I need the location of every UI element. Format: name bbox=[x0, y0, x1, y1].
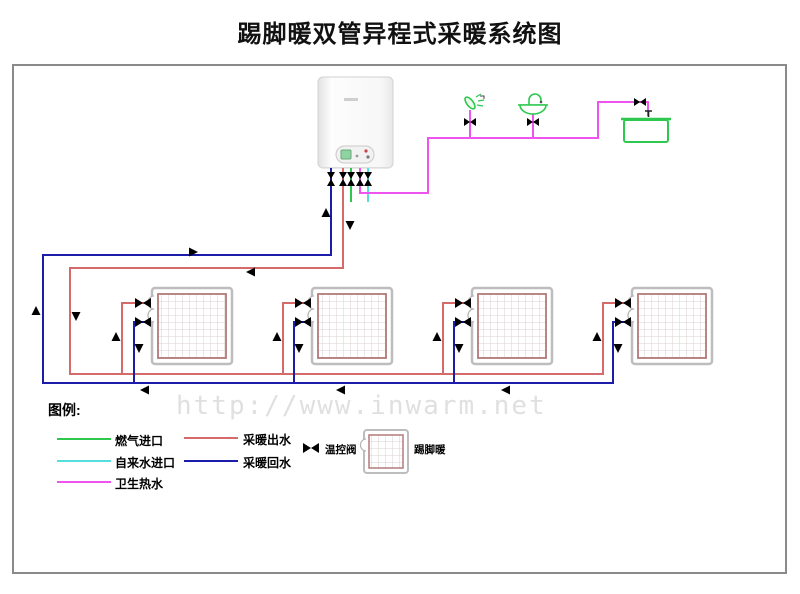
legend-label-tapwater: 自来水进口 bbox=[115, 454, 175, 471]
legend-label-radiator: 踢脚暖 bbox=[414, 442, 446, 457]
legend-label-valve: 温控阀 bbox=[325, 442, 357, 457]
legend-label-hotwater: 卫生热水 bbox=[115, 475, 163, 492]
legend-line-return bbox=[184, 460, 238, 462]
bathtub-icon bbox=[621, 111, 671, 142]
baseboard-heater-1 bbox=[148, 288, 232, 364]
sanitary-hot-water-pipes bbox=[360, 102, 648, 193]
shower-head-icon bbox=[463, 94, 484, 110]
stop-valve-icons bbox=[464, 95, 646, 126]
boiler-logo bbox=[344, 98, 358, 101]
system-diagram bbox=[0, 0, 800, 594]
legend-label-gas: 燃气进口 bbox=[115, 432, 163, 449]
legend-line-hotwater bbox=[57, 481, 111, 483]
baseboard-heater-2 bbox=[308, 288, 392, 364]
legend-label-return: 采暖回水 bbox=[243, 454, 291, 471]
washbasin-icon bbox=[518, 94, 548, 114]
baseboard-heater-3 bbox=[468, 288, 552, 364]
legend-line-tapwater bbox=[57, 460, 111, 462]
wall-hung-boiler-icon bbox=[318, 77, 393, 168]
diagram-page: 踢脚暖双管异程式采暖系统图 http://www.inwarm.net bbox=[0, 0, 800, 594]
legend-heading: 图例: bbox=[48, 400, 81, 420]
tub-faucet-icon bbox=[645, 111, 652, 117]
legend-baseboard-heater-icon bbox=[361, 430, 409, 473]
boiler-display bbox=[341, 150, 351, 159]
legend-line-supply bbox=[184, 437, 238, 439]
legend-label-supply: 采暖出水 bbox=[243, 431, 291, 448]
baseboard-heater-4 bbox=[628, 288, 712, 364]
legend-thermostatic-valve-icon bbox=[303, 440, 319, 453]
boiler-connection-valve-icons bbox=[327, 172, 372, 186]
legend-line-gas bbox=[57, 438, 111, 440]
